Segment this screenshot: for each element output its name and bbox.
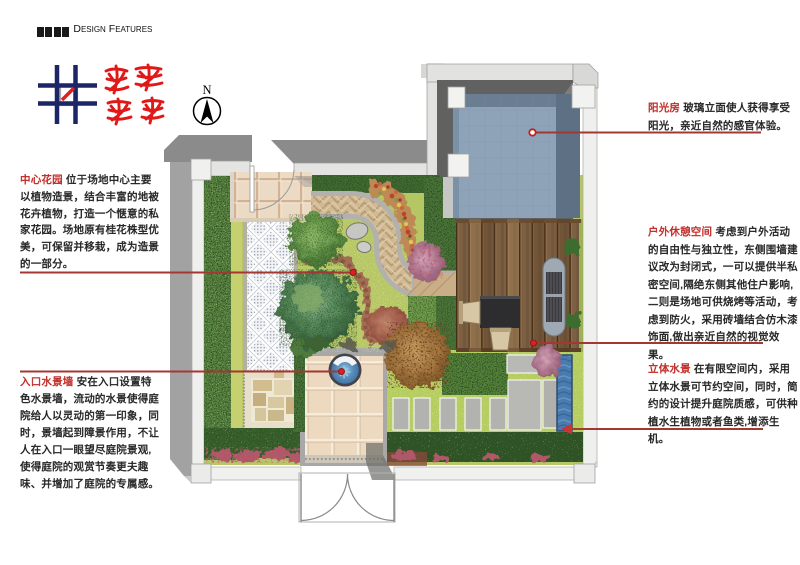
svg-text:N: N xyxy=(202,83,211,97)
